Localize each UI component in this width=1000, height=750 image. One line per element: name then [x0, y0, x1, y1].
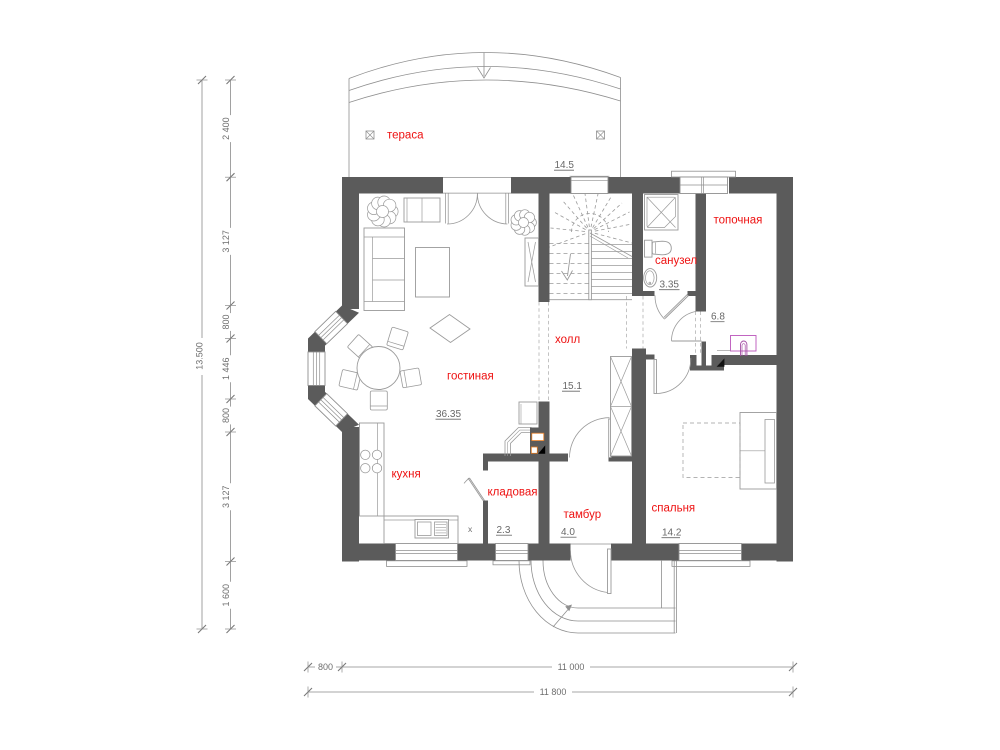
svg-text:2.3: 2.3	[497, 525, 511, 536]
svg-text:4.0: 4.0	[561, 527, 575, 538]
svg-text:800: 800	[221, 314, 231, 329]
svg-text:14.2: 14.2	[662, 528, 682, 539]
svg-text:6.8: 6.8	[711, 312, 725, 323]
svg-text:800: 800	[221, 408, 231, 423]
svg-text:санузел: санузел	[655, 255, 697, 267]
svg-text:1 600: 1 600	[221, 584, 231, 607]
svg-text:11 800: 11 800	[540, 687, 567, 697]
svg-text:тераса: тераса	[387, 130, 424, 142]
svg-text:спальня: спальня	[652, 503, 696, 515]
svg-text:3 127: 3 127	[221, 230, 231, 253]
svg-text:топочная: топочная	[714, 215, 763, 227]
svg-text:1 446: 1 446	[221, 357, 231, 380]
svg-text:тамбур: тамбур	[564, 509, 602, 521]
svg-text:холл: холл	[555, 334, 580, 346]
svg-text:гостиная: гостиная	[447, 371, 494, 383]
svg-text:кладовая: кладовая	[488, 487, 538, 499]
svg-text:3 127: 3 127	[221, 485, 231, 508]
svg-text:2 400: 2 400	[221, 117, 231, 140]
svg-text:кухня: кухня	[392, 469, 421, 481]
svg-text:800: 800	[318, 662, 333, 672]
svg-text:13.500: 13.500	[195, 342, 205, 370]
svg-text:3.35: 3.35	[660, 280, 680, 291]
svg-text:14.5: 14.5	[555, 160, 575, 171]
svg-text:15.1: 15.1	[563, 381, 583, 392]
svg-text:11 000: 11 000	[558, 662, 585, 672]
svg-text:36.35: 36.35	[436, 409, 461, 420]
